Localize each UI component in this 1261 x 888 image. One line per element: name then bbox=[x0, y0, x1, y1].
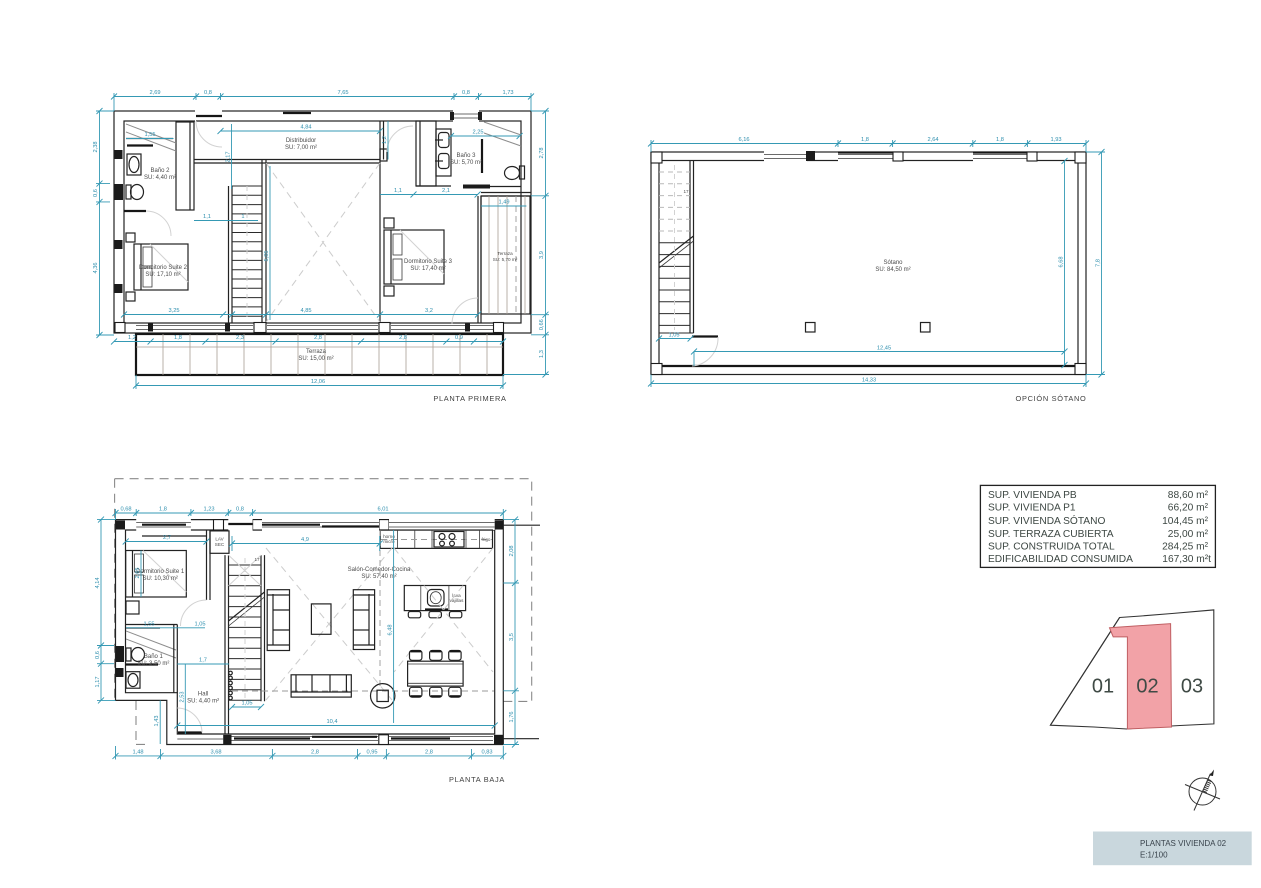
svg-text:1,1: 1,1 bbox=[203, 214, 211, 220]
svg-text:3,9: 3,9 bbox=[539, 251, 545, 259]
svg-text:SUP. VIVIENDA SÓTANO: SUP. VIVIENDA SÓTANO bbox=[988, 514, 1105, 527]
svg-text:104,45 m²: 104,45 m² bbox=[1162, 516, 1208, 527]
svg-text:4,9: 4,9 bbox=[301, 537, 309, 543]
svg-text:Baño 1: Baño 1 bbox=[144, 654, 164, 660]
svg-text:167,30 m²t: 167,30 m²t bbox=[1162, 554, 1211, 565]
svg-text:2,8: 2,8 bbox=[399, 335, 407, 341]
svg-text:2,8: 2,8 bbox=[425, 749, 433, 755]
svg-text:12,45: 12,45 bbox=[877, 346, 891, 352]
svg-text:0,8: 0,8 bbox=[236, 507, 244, 513]
svg-text:6,48: 6,48 bbox=[388, 624, 394, 635]
svg-text:2,08: 2,08 bbox=[509, 545, 515, 556]
svg-text:SU: 17,40 m²: SU: 17,40 m² bbox=[410, 266, 445, 272]
svg-text:4,85: 4,85 bbox=[300, 308, 311, 314]
svg-text:Salón-Comedor-Cocina: Salón-Comedor-Cocina bbox=[348, 567, 411, 573]
svg-text:0,8: 0,8 bbox=[204, 90, 212, 96]
svg-text:1,17: 1,17 bbox=[95, 676, 101, 687]
svg-text:3,5: 3,5 bbox=[509, 633, 515, 641]
svg-text:Terraza: Terraza bbox=[497, 251, 513, 256]
svg-text:Baño 2: Baño 2 bbox=[150, 168, 170, 174]
svg-text:1,3: 1,3 bbox=[539, 350, 545, 358]
svg-text:PLANTAS VIVIENDA 02: PLANTAS VIVIENDA 02 bbox=[1140, 839, 1227, 848]
svg-text:SU: 5,70 m²: SU: 5,70 m² bbox=[493, 257, 518, 262]
svg-text:2,3: 2,3 bbox=[236, 335, 244, 341]
svg-text:PLANTA PRIMERA: PLANTA PRIMERA bbox=[433, 394, 506, 403]
svg-text:1,8: 1,8 bbox=[174, 335, 182, 341]
svg-text:SUP. TERRAZA CUBIERTA: SUP. TERRAZA CUBIERTA bbox=[988, 529, 1114, 540]
svg-text:7,65: 7,65 bbox=[337, 90, 348, 96]
svg-text:0,9: 0,9 bbox=[455, 335, 463, 341]
svg-text:1,2: 1,2 bbox=[128, 335, 136, 341]
svg-text:2,64: 2,64 bbox=[927, 137, 938, 143]
svg-text:03: 03 bbox=[1181, 676, 1203, 698]
svg-text:2,78: 2,78 bbox=[539, 147, 545, 158]
svg-text:4,84: 4,84 bbox=[300, 125, 311, 131]
svg-text:vajillas: vajillas bbox=[450, 598, 464, 603]
svg-text:SU: 84,50 m²: SU: 84,50 m² bbox=[875, 267, 910, 273]
svg-text:EDIFICABILIDAD CONSUMIDA: EDIFICABILIDAD CONSUMIDA bbox=[988, 554, 1133, 565]
svg-text:6,68: 6,68 bbox=[1059, 256, 1065, 267]
svg-text:01: 01 bbox=[1092, 676, 1114, 698]
svg-text:88,60 m²: 88,60 m² bbox=[1168, 490, 1209, 501]
svg-text:0,66: 0,66 bbox=[539, 319, 545, 330]
svg-text:2,69: 2,69 bbox=[149, 90, 160, 96]
svg-text:5,05: 5,05 bbox=[264, 250, 270, 261]
svg-text:1,23: 1,23 bbox=[203, 507, 214, 513]
svg-text:Dormitorio Suite 2: Dormitorio Suite 2 bbox=[139, 265, 188, 271]
svg-text:2,8: 2,8 bbox=[314, 335, 322, 341]
svg-text:1,55: 1,55 bbox=[144, 132, 155, 138]
svg-text:1,48: 1,48 bbox=[132, 749, 143, 755]
svg-text:1,7: 1,7 bbox=[199, 658, 207, 664]
svg-text:0,6: 0,6 bbox=[93, 189, 99, 197]
svg-text:Dormitorio Suite 3: Dormitorio Suite 3 bbox=[404, 259, 453, 265]
svg-text:1,1: 1,1 bbox=[394, 188, 402, 194]
svg-text:SU: 57,40 m²: SU: 57,40 m² bbox=[361, 574, 396, 580]
svg-text:4,36: 4,36 bbox=[93, 262, 99, 273]
svg-text:SU: 7,00 m²: SU: 7,00 m² bbox=[285, 145, 317, 151]
svg-text:3,2: 3,2 bbox=[425, 308, 433, 314]
svg-text:3,68: 3,68 bbox=[210, 749, 221, 755]
svg-text:SU: 4,40 m²: SU: 4,40 m² bbox=[144, 175, 176, 181]
svg-text:SU: 3,50 m²: SU: 3,50 m² bbox=[137, 661, 169, 667]
svg-text:Distribuidor: Distribuidor bbox=[286, 138, 316, 144]
svg-text:7,8: 7,8 bbox=[1096, 259, 1102, 267]
svg-text:17: 17 bbox=[254, 557, 260, 562]
svg-text:frigo: frigo bbox=[482, 537, 491, 542]
svg-text:2,17: 2,17 bbox=[226, 151, 232, 162]
svg-text:6,01: 6,01 bbox=[377, 507, 388, 513]
svg-text:E:1/100: E:1/100 bbox=[1140, 851, 1168, 860]
svg-text:10,4: 10,4 bbox=[326, 719, 337, 725]
svg-text:0,8: 0,8 bbox=[462, 90, 470, 96]
svg-text:Dormitorio Suite 1: Dormitorio Suite 1 bbox=[136, 569, 185, 575]
svg-text:SU: 10,30 m²: SU: 10,30 m² bbox=[143, 576, 178, 582]
svg-text:0,6: 0,6 bbox=[95, 651, 101, 659]
svg-text:0,68: 0,68 bbox=[120, 507, 131, 513]
svg-text:1,05: 1,05 bbox=[194, 621, 205, 627]
svg-text:284,25 m²: 284,25 m² bbox=[1162, 541, 1208, 552]
svg-text:1,05: 1,05 bbox=[668, 333, 679, 339]
svg-text:Sótano: Sótano bbox=[883, 260, 903, 266]
svg-text:SU: 15,00 m²: SU: 15,00 m² bbox=[298, 356, 333, 362]
svg-text:Baño 3: Baño 3 bbox=[456, 153, 476, 159]
svg-text:2,8: 2,8 bbox=[311, 749, 319, 755]
svg-text:SU: 4,40 m²: SU: 4,40 m² bbox=[187, 699, 219, 705]
svg-text:1,93: 1,93 bbox=[1050, 137, 1061, 143]
svg-text:6,16: 6,16 bbox=[738, 137, 749, 143]
svg-text:0,95: 0,95 bbox=[366, 749, 377, 755]
svg-text:SUP. VIVIENDA PB: SUP. VIVIENDA PB bbox=[988, 490, 1077, 501]
svg-text:25,00 m²: 25,00 m² bbox=[1168, 529, 1209, 540]
svg-text:12,06: 12,06 bbox=[311, 379, 325, 385]
svg-text:2,1: 2,1 bbox=[442, 188, 450, 194]
svg-text:2,65: 2,65 bbox=[135, 567, 141, 578]
svg-text:SU: 5,70 m²: SU: 5,70 m² bbox=[450, 160, 482, 166]
svg-text:1,55: 1,55 bbox=[143, 621, 154, 627]
svg-text:SU: 17,10 m²: SU: 17,10 m² bbox=[145, 272, 180, 278]
svg-text:4,14: 4,14 bbox=[95, 577, 101, 588]
svg-text:02: 02 bbox=[1136, 676, 1158, 698]
svg-text:Hall: Hall bbox=[198, 692, 208, 698]
svg-text:1,05: 1,05 bbox=[241, 701, 252, 707]
svg-text:1,8: 1,8 bbox=[159, 507, 167, 513]
svg-text:0,83: 0,83 bbox=[481, 749, 492, 755]
svg-text:SUP. VIVIENDA P1: SUP. VIVIENDA P1 bbox=[988, 503, 1076, 514]
svg-text:1,76: 1,76 bbox=[509, 711, 515, 722]
svg-text:LAV: LAV bbox=[215, 537, 224, 542]
svg-text:2,25: 2,25 bbox=[472, 130, 483, 136]
svg-text:Terraza: Terraza bbox=[306, 349, 327, 355]
svg-text:1,73: 1,73 bbox=[502, 90, 513, 96]
svg-text:SUP. CONSTRUIDA TOTAL: SUP. CONSTRUIDA TOTAL bbox=[988, 541, 1115, 552]
svg-text:PLANTA BAJA: PLANTA BAJA bbox=[449, 775, 505, 784]
svg-text:1,49: 1,49 bbox=[498, 200, 509, 206]
svg-text:1,43: 1,43 bbox=[154, 715, 160, 726]
svg-text:2,53: 2,53 bbox=[179, 691, 185, 702]
svg-text:1,8: 1,8 bbox=[996, 137, 1004, 143]
svg-text:1,8: 1,8 bbox=[861, 137, 869, 143]
svg-text:3,25: 3,25 bbox=[168, 308, 179, 314]
svg-text:17: 17 bbox=[683, 189, 689, 194]
svg-text:2,38: 2,38 bbox=[93, 141, 99, 152]
svg-text:66,20 m²: 66,20 m² bbox=[1168, 503, 1209, 514]
svg-text:OPCIÓN SÓTANO: OPCIÓN SÓTANO bbox=[1016, 394, 1087, 403]
svg-text:2,7: 2,7 bbox=[163, 535, 171, 541]
svg-text:1,2: 1,2 bbox=[382, 136, 388, 144]
svg-text:SEC: SEC bbox=[215, 542, 225, 547]
svg-text:1: 1 bbox=[241, 214, 244, 220]
svg-text:14,33: 14,33 bbox=[862, 378, 876, 384]
